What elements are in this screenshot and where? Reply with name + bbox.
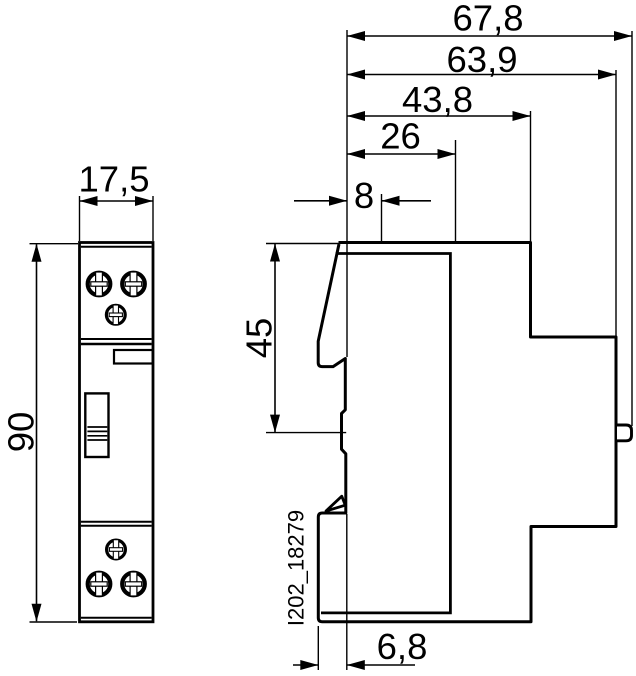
svg-text:6,8: 6,8 [377,626,428,667]
svg-text:26: 26 [380,116,421,157]
svg-text:43,8: 43,8 [402,79,473,120]
svg-text:90: 90 [1,412,42,453]
svg-text:17,5: 17,5 [78,159,149,200]
svg-text:8: 8 [354,175,374,216]
svg-text:63,9: 63,9 [446,39,517,80]
svg-text:I202_18279: I202_18279 [284,510,309,626]
svg-text:45: 45 [239,318,280,359]
svg-text:67,8: 67,8 [452,0,523,39]
